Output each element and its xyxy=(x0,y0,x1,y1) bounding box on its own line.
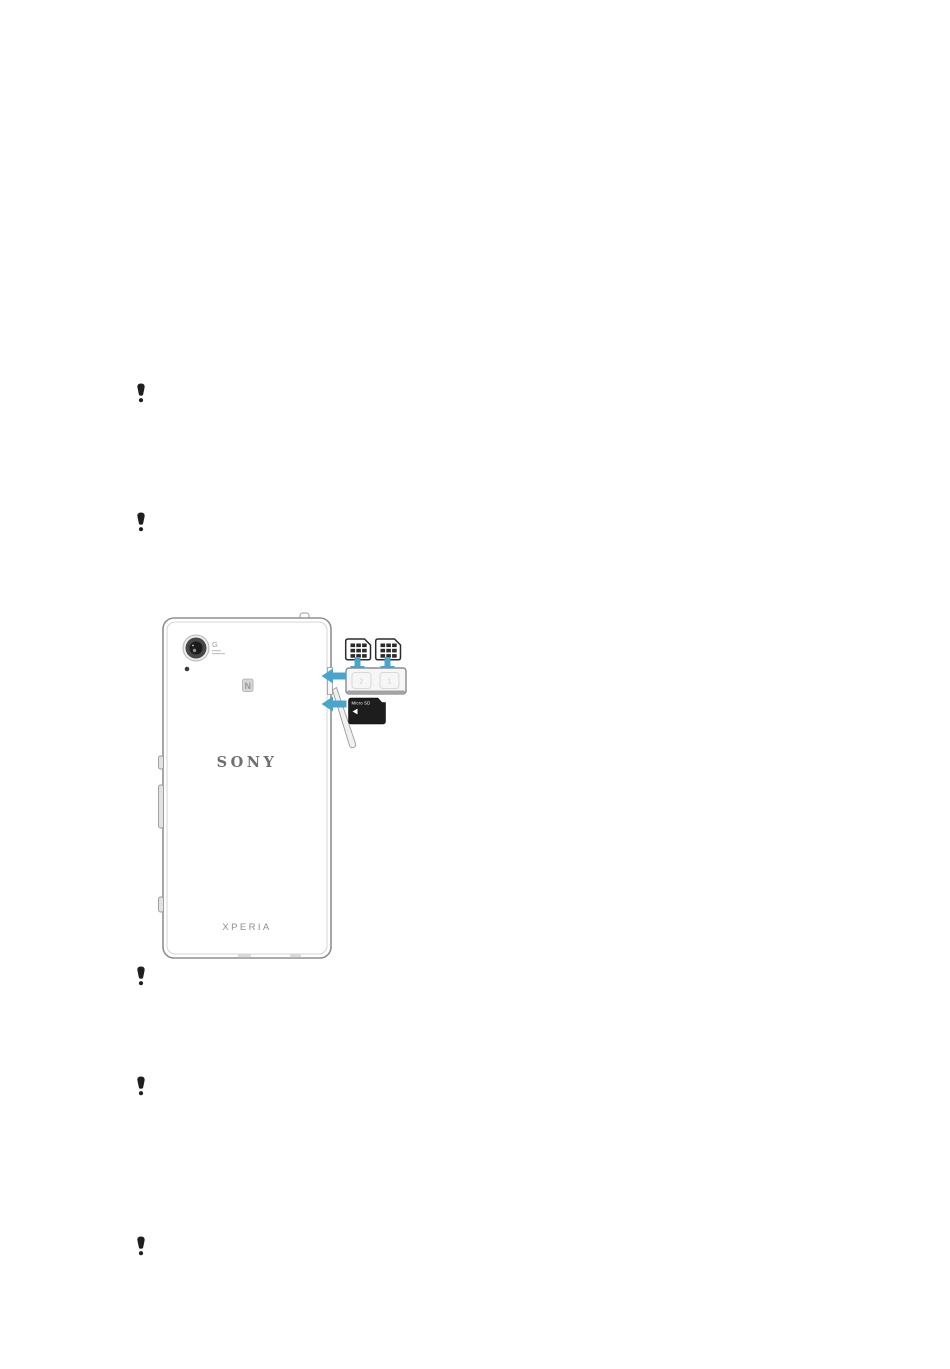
camera-spec-line xyxy=(212,653,225,654)
svg-text:N: N xyxy=(245,681,252,691)
exclamation-icon xyxy=(135,383,147,404)
camera-spec-line xyxy=(212,650,221,651)
sim-contacts xyxy=(351,644,367,658)
xperia-logo: XPERIA xyxy=(222,922,271,933)
important-note-icon xyxy=(135,1076,147,1097)
exclamation-icon xyxy=(135,512,147,533)
camera-key xyxy=(159,897,164,912)
sony-logo: SONY xyxy=(217,754,278,771)
volume-rocker xyxy=(159,785,164,828)
tray-slot-2-label: 2 xyxy=(360,679,364,686)
microsd-card: Micro SD xyxy=(349,698,386,724)
camera-lens xyxy=(183,635,209,661)
camera-flash xyxy=(185,667,190,672)
important-note-icon xyxy=(135,512,147,533)
power-button xyxy=(159,756,164,769)
important-note-icon xyxy=(135,383,147,404)
bottom-edge-detail xyxy=(238,954,251,957)
camera-brand-label: G xyxy=(212,640,218,649)
device-illustration: G N SONY XPERIA xyxy=(150,610,410,970)
microsd-label: Micro SD xyxy=(352,701,371,706)
sim-tray: 2 1 xyxy=(346,668,406,695)
exclamation-icon xyxy=(135,1236,147,1257)
exclamation-icon xyxy=(135,966,147,987)
bottom-edge-detail xyxy=(290,954,301,957)
nfc-n-mark: N xyxy=(243,679,254,692)
sim-card-2 xyxy=(376,639,401,660)
exclamation-icon xyxy=(135,1076,147,1097)
manual-page: G N SONY XPERIA xyxy=(0,0,950,1369)
important-note-icon xyxy=(135,1236,147,1257)
sim-contacts xyxy=(381,644,397,658)
sim-card-1 xyxy=(346,639,371,660)
important-note-icon xyxy=(135,966,147,987)
tray-slot-1-label: 1 xyxy=(388,679,392,686)
